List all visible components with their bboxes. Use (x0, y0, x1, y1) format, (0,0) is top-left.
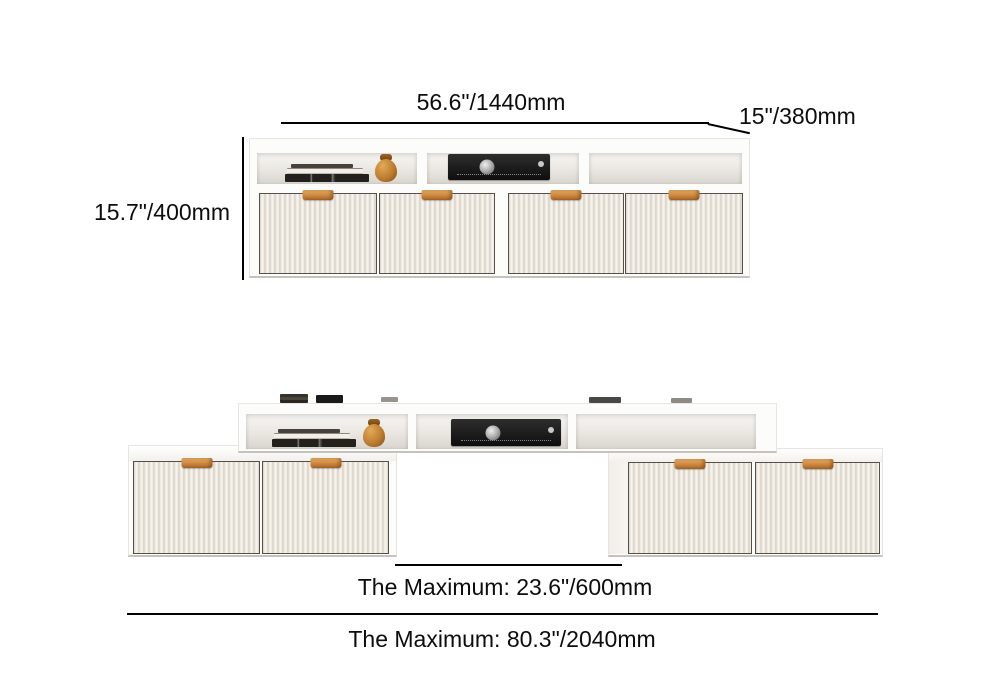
door-handle (669, 190, 700, 200)
upper-shelf-row (257, 153, 742, 184)
upper-depth-label: 15"/380mm (739, 103, 856, 130)
bridge-shelf-unit (238, 403, 777, 453)
receiver-small-knob (538, 161, 544, 167)
tabletop-gray-item-decor (381, 397, 398, 402)
book (285, 174, 369, 182)
upper-width-label: 56.6"/1440mm (381, 89, 601, 116)
shelf-divider (417, 153, 427, 184)
bridge-shelf-row (246, 414, 770, 449)
shelf-end-wall (756, 414, 770, 449)
av-receiver-decor (451, 419, 561, 446)
door-handle (802, 459, 833, 469)
extension-dimension-line (395, 564, 622, 566)
upper-height-label: 15.7"/400mm (55, 199, 230, 226)
upper-door-3 (508, 193, 624, 274)
lower-right-cabinet (608, 448, 883, 557)
books-decor (285, 164, 369, 182)
door-handle (303, 190, 334, 200)
books-decor (272, 429, 356, 447)
upper-shelf-compartment-right (589, 153, 742, 184)
bridge-compartment-right (576, 414, 756, 449)
book (272, 439, 356, 447)
lower-right-door-2 (755, 462, 880, 554)
upper-shelf-compartment-middle (427, 153, 579, 184)
tabletop-black-item-decor (316, 395, 343, 403)
av-receiver-decor (448, 154, 550, 180)
wooden-jar-decor (363, 419, 385, 447)
upper-door-1 (259, 193, 377, 274)
receiver-small-knob (548, 427, 554, 433)
receiver-knob (479, 160, 494, 175)
shelf-divider (568, 414, 576, 449)
receiver-knob (485, 425, 500, 440)
wooden-jar-decor (375, 154, 397, 182)
jar-body (363, 424, 385, 447)
dimension-diagram: 56.6"/1440mm 15"/380mm 15.7"/400mm (0, 0, 1000, 700)
tabletop-dark-item-decor (589, 397, 621, 403)
upper-door-2 (379, 193, 495, 274)
receiver-button-row (461, 440, 551, 441)
bridge-compartment-middle (416, 414, 568, 449)
shelf-divider (408, 414, 416, 449)
cabinet-side-panel (609, 462, 628, 554)
lower-right-door-1 (628, 462, 752, 554)
door-handle (181, 458, 212, 468)
shelf-divider (579, 153, 589, 184)
door-handle (675, 459, 706, 469)
upper-door-4 (625, 193, 743, 274)
lower-left-door-1 (133, 461, 260, 554)
door-handle (551, 190, 582, 200)
door-handle (310, 458, 341, 468)
tabletop-books-decor (280, 394, 308, 403)
upper-height-dimension-line (242, 137, 244, 280)
jar-body (375, 159, 397, 182)
lower-left-cabinet (128, 445, 397, 557)
tabletop-gray-item-decor (671, 398, 692, 403)
overall-width-dimension-line (127, 613, 878, 615)
lower-left-door-2 (262, 461, 389, 554)
upper-cabinet (249, 138, 750, 278)
extension-label: The Maximum: 23.6"/600mm (345, 574, 665, 601)
receiver-button-row (457, 174, 541, 175)
upper-shelf-compartment-left (257, 153, 417, 184)
door-handle (422, 190, 453, 200)
overall-width-label: The Maximum: 80.3"/2040mm (342, 626, 662, 653)
upper-width-dimension-line (281, 122, 709, 124)
bridge-compartment-left (246, 414, 408, 449)
